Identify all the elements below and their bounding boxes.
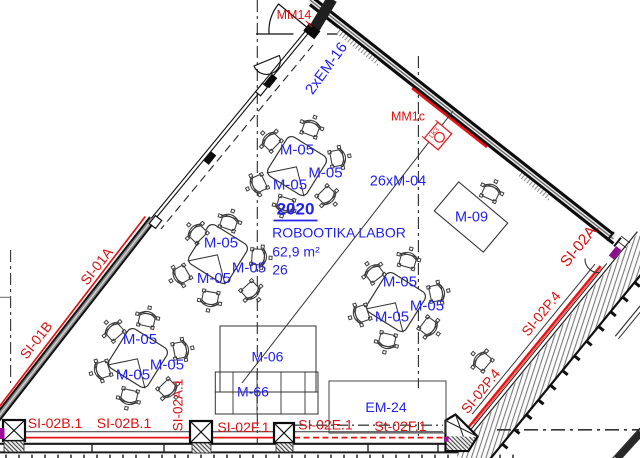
svg-text:M-09: M-09: [455, 210, 488, 226]
svg-text:SI-02F.1: SI-02F.1: [217, 419, 269, 435]
svg-text:26xM-04: 26xM-04: [370, 174, 426, 190]
svg-text:EM-24: EM-24: [365, 399, 406, 415]
svg-text:M-05: M-05: [308, 165, 342, 182]
svg-text:M-66: M-66: [237, 384, 269, 400]
svg-text:SI-02B.1: SI-02B.1: [28, 415, 83, 431]
svg-text:M-05: M-05: [150, 357, 184, 374]
svg-text:26: 26: [272, 262, 288, 278]
svg-text:M-05: M-05: [410, 298, 444, 315]
svg-text:62,9 m²: 62,9 m²: [272, 244, 320, 260]
svg-text:M-05: M-05: [280, 142, 314, 159]
svg-text:MM1c: MM1c: [391, 110, 425, 124]
svg-text:M-05: M-05: [204, 235, 238, 252]
svg-text:M-05: M-05: [383, 274, 417, 291]
svg-text:ROBOOTIKA LABOR: ROBOOTIKA LABOR: [272, 225, 406, 241]
svg-text:2020: 2020: [277, 200, 315, 219]
svg-text:St-02F.1: St-02F.1: [374, 418, 426, 434]
svg-text:M-06: M-06: [252, 349, 284, 365]
svg-text:M-05: M-05: [375, 309, 409, 326]
svg-text:M-05: M-05: [232, 260, 266, 277]
svg-text:SI-02B.1: SI-02B.1: [97, 415, 152, 431]
svg-text:M-05: M-05: [197, 270, 231, 287]
svg-text:M-05: M-05: [273, 177, 307, 194]
svg-text:SI-02A.1: SI-02A.1: [171, 379, 186, 432]
svg-text:M-05: M-05: [116, 367, 150, 384]
svg-text:M-05: M-05: [123, 331, 157, 348]
svg-text:SI-02E.1: SI-02E.1: [298, 417, 353, 433]
svg-text:MM14: MM14: [277, 8, 312, 22]
